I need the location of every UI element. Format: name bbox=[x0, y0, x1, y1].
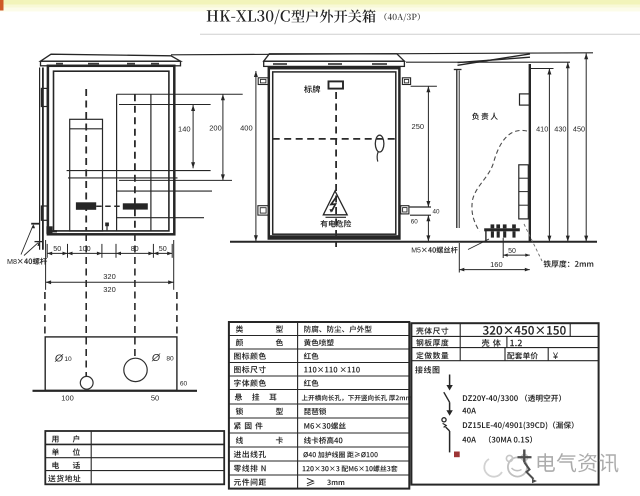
svg-text:¥: ¥ bbox=[552, 351, 559, 361]
svg-text:40: 40 bbox=[432, 208, 440, 215]
svg-text:50: 50 bbox=[159, 244, 167, 253]
svg-text:60: 60 bbox=[411, 218, 419, 225]
svg-text:50: 50 bbox=[151, 393, 159, 402]
svg-text:160: 160 bbox=[490, 260, 503, 269]
svg-text:80: 80 bbox=[166, 356, 174, 363]
svg-text:M5: M5 bbox=[411, 248, 421, 255]
svg-text:250: 250 bbox=[412, 122, 425, 131]
svg-text:320: 320 bbox=[103, 285, 116, 294]
svg-text:400: 400 bbox=[240, 124, 253, 133]
svg-text:200: 200 bbox=[209, 124, 222, 133]
svg-text:M8: M8 bbox=[7, 257, 17, 266]
svg-text:60: 60 bbox=[180, 381, 188, 388]
svg-text:450: 450 bbox=[573, 125, 585, 134]
svg-text:50: 50 bbox=[53, 244, 61, 253]
svg-text:140: 140 bbox=[178, 124, 191, 133]
svg-text:Ø: Ø bbox=[151, 352, 161, 364]
svg-text:430: 430 bbox=[554, 125, 566, 134]
svg-text:100: 100 bbox=[79, 244, 91, 253]
svg-text:320: 320 bbox=[103, 272, 116, 281]
svg-text:410: 410 bbox=[536, 125, 548, 134]
svg-text:50: 50 bbox=[508, 248, 516, 255]
svg-text:Ø: Ø bbox=[54, 353, 64, 365]
svg-text:10: 10 bbox=[64, 356, 72, 363]
svg-text:100: 100 bbox=[61, 393, 74, 402]
